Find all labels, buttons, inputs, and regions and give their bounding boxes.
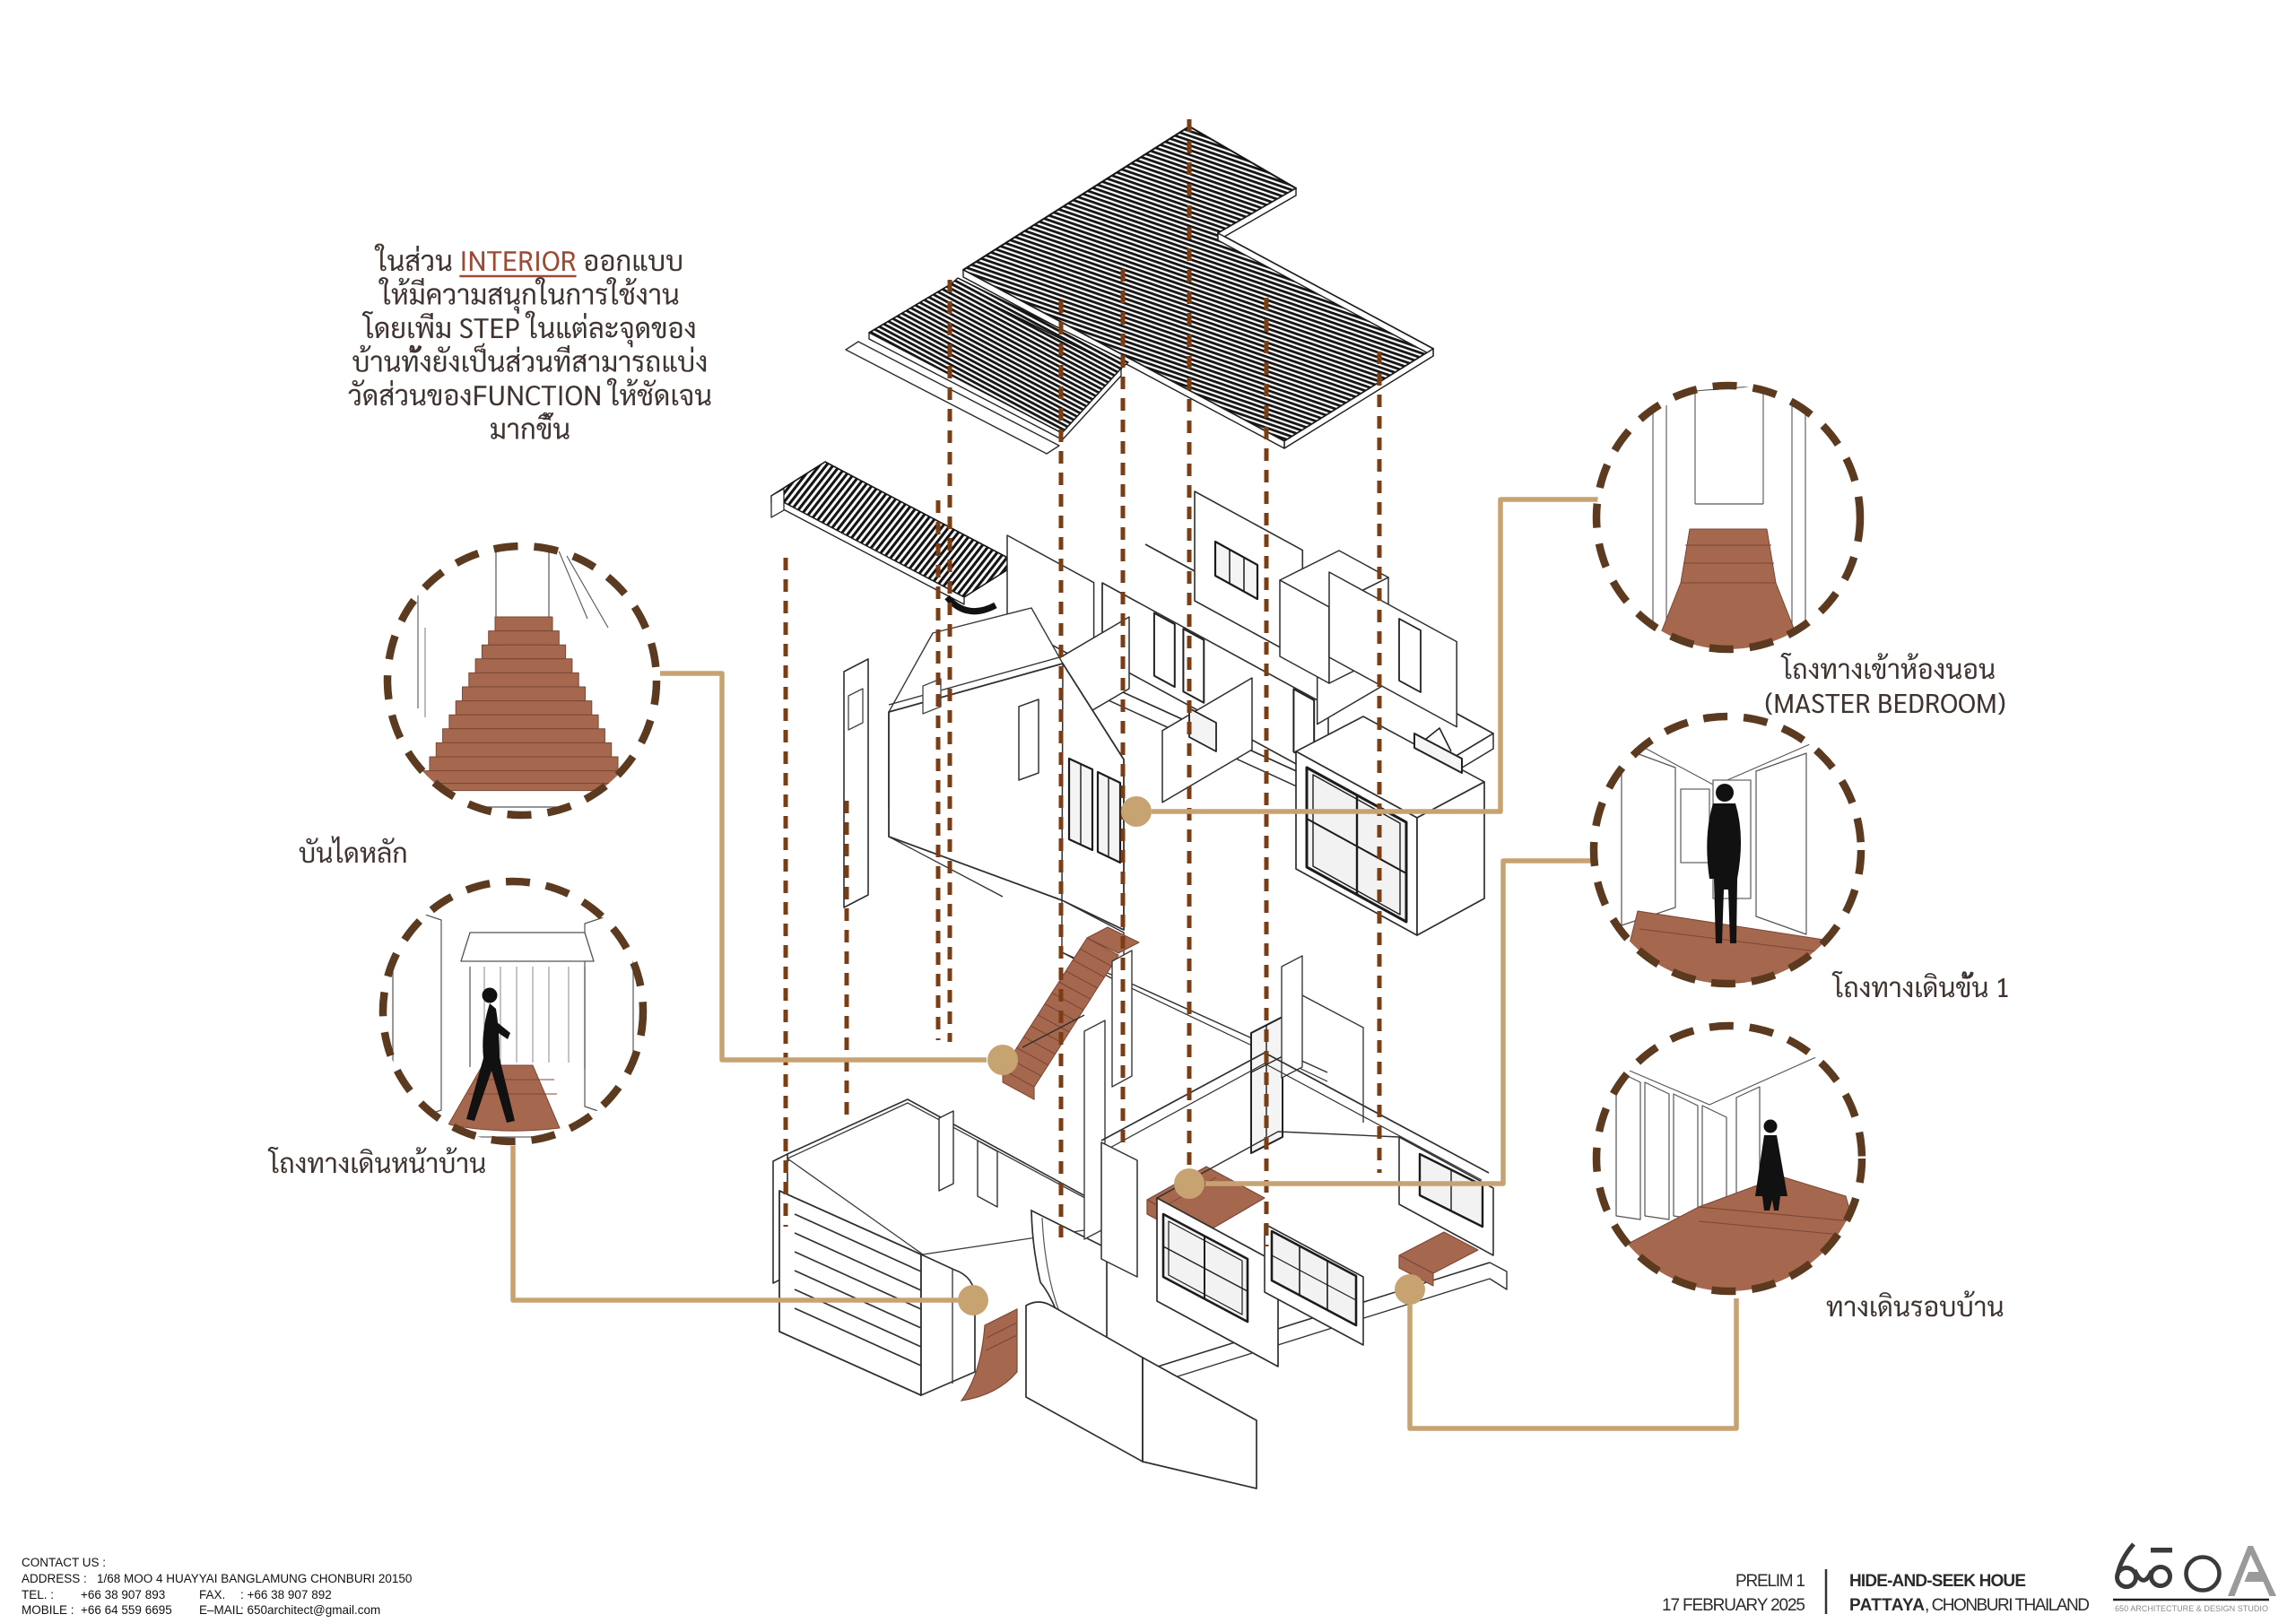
svg-text:PATTAYA: PATTAYA: [1849, 1596, 1925, 1615]
svg-text:MOBILE :: MOBILE :: [22, 1603, 74, 1617]
svg-text:17 FEBRUARY 2025: 17 FEBRUARY 2025: [1662, 1596, 1805, 1615]
svg-text:+66 64 559 6695: +66 64 559 6695: [81, 1603, 172, 1617]
svg-text:: 650architect@gmail.com: : 650architect@gmail.com: [240, 1603, 380, 1617]
svg-text:FAX.: FAX.: [199, 1588, 225, 1601]
svg-text:+66 38 907 893: +66 38 907 893: [81, 1588, 165, 1601]
svg-text:CONTACT US :: CONTACT US :: [22, 1556, 106, 1569]
svg-text:650 ARCHITECTURE & DESIGN STUD: 650 ARCHITECTURE & DESIGN STUDIO: [2115, 1604, 2268, 1613]
svg-text:E–MAIL: E–MAIL: [199, 1603, 243, 1617]
svg-text:: +66 38 907 892: : +66 38 907 892: [240, 1588, 332, 1601]
svg-text:PRELIM 1: PRELIM 1: [1735, 1572, 1805, 1591]
svg-text:ADDRESS :: ADDRESS :: [22, 1572, 87, 1585]
svg-text:TEL. :: TEL. :: [22, 1588, 54, 1601]
svg-text:, CHONBURI THAILAND: , CHONBURI THAILAND: [1925, 1596, 2090, 1615]
svg-text:1/68 MOO 4 HUAYYAI BANGLAMUNG: 1/68 MOO 4 HUAYYAI BANGLAMUNG CHONBURI 2…: [97, 1572, 412, 1585]
svg-text:HIDE-AND-SEEK HOUE: HIDE-AND-SEEK HOUE: [1849, 1572, 2026, 1591]
